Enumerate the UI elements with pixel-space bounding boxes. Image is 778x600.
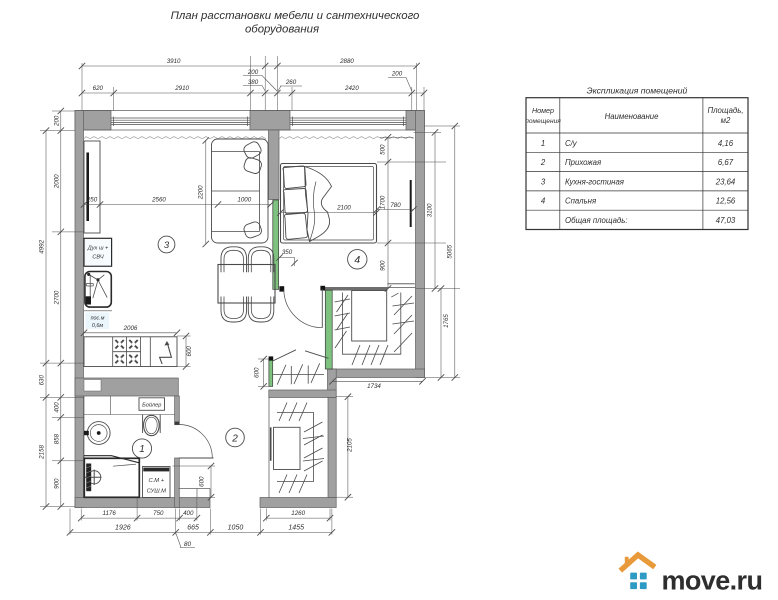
svg-text:620: 620 <box>93 85 104 92</box>
svg-text:250: 250 <box>86 197 98 204</box>
svg-text:2880: 2880 <box>339 58 354 65</box>
svg-text:1: 1 <box>139 444 145 455</box>
svg-text:600: 600 <box>199 476 206 487</box>
svg-text:2105: 2105 <box>347 438 354 453</box>
svg-text:Экспликация помещений: Экспликация помещений <box>587 86 688 96</box>
svg-text:600: 600 <box>186 346 193 357</box>
svg-text:900: 900 <box>53 478 60 489</box>
svg-text:80: 80 <box>184 541 192 548</box>
svg-text:3: 3 <box>164 240 170 251</box>
svg-text:400: 400 <box>53 402 60 413</box>
svg-text:1260: 1260 <box>291 510 305 517</box>
svg-text:750: 750 <box>153 510 164 517</box>
svg-text:1926: 1926 <box>115 524 131 531</box>
svg-text:1050: 1050 <box>228 524 244 531</box>
svg-text:858: 858 <box>53 433 60 444</box>
svg-text:380: 380 <box>248 79 259 86</box>
svg-text:Спальня: Спальня <box>565 197 597 206</box>
svg-text:47,03: 47,03 <box>716 216 736 225</box>
svg-text:помещения: помещения <box>525 118 561 125</box>
svg-text:2910: 2910 <box>174 85 189 92</box>
svg-text:1765: 1765 <box>443 314 450 328</box>
svg-text:23,64: 23,64 <box>715 177 736 186</box>
svg-text:Наименование: Наименование <box>605 112 659 121</box>
svg-text:Общая площадь:: Общая площадь: <box>565 216 628 225</box>
svg-text:780: 780 <box>390 202 401 209</box>
svg-text:Бойлер: Бойлер <box>142 402 161 409</box>
svg-text:665: 665 <box>187 524 199 531</box>
svg-text:Дух ш +: Дух ш + <box>87 246 109 252</box>
svg-text:900: 900 <box>380 260 387 271</box>
svg-text:2006: 2006 <box>123 325 138 332</box>
svg-text:5065: 5065 <box>446 244 453 258</box>
svg-text:4,16: 4,16 <box>718 139 734 148</box>
svg-text:6,67: 6,67 <box>718 158 734 167</box>
svg-text:3910: 3910 <box>167 58 181 65</box>
svg-text:С/у: С/у <box>565 139 578 148</box>
svg-text:1700: 1700 <box>380 195 387 209</box>
svg-text:1176: 1176 <box>102 510 116 517</box>
svg-text:630: 630 <box>39 375 46 386</box>
svg-text:2158: 2158 <box>39 445 46 460</box>
svg-text:200: 200 <box>53 115 60 127</box>
svg-text:1: 1 <box>541 139 545 148</box>
svg-text:2: 2 <box>231 433 238 444</box>
svg-text:Номер: Номер <box>532 106 554 115</box>
svg-text:2100: 2100 <box>336 205 351 212</box>
svg-text:Прихожая: Прихожая <box>565 158 602 167</box>
svg-text:350: 350 <box>282 249 293 256</box>
svg-text:2000: 2000 <box>53 174 60 189</box>
svg-text:200: 200 <box>247 69 259 76</box>
svg-text:пос.м: пос.м <box>91 316 105 322</box>
svg-text:м2: м2 <box>721 116 731 125</box>
svg-text:оборудования: оборудования <box>245 24 319 36</box>
svg-text:0,6м: 0,6м <box>92 323 103 329</box>
svg-text:Кухня-гостиная: Кухня-гостиная <box>565 177 625 186</box>
svg-text:2700: 2700 <box>53 290 60 305</box>
svg-text:3: 3 <box>541 177 546 186</box>
svg-text:1000: 1000 <box>237 197 251 204</box>
svg-text:4: 4 <box>541 197 546 206</box>
svg-text:План расстановки мебели и сант: План расстановки мебели и сантехническог… <box>171 10 420 22</box>
svg-text:400: 400 <box>183 510 194 517</box>
svg-text:4992: 4992 <box>39 239 46 253</box>
svg-text:Площадь,: Площадь, <box>707 106 743 115</box>
svg-text:260: 260 <box>285 79 297 86</box>
svg-text:2420: 2420 <box>344 85 359 92</box>
svg-text:1734: 1734 <box>367 383 381 390</box>
svg-text:4: 4 <box>354 254 360 266</box>
svg-text:500: 500 <box>380 144 387 155</box>
svg-text:600: 600 <box>254 367 261 378</box>
svg-text:3100: 3100 <box>427 203 434 217</box>
svg-text:СВЧ: СВЧ <box>92 255 104 261</box>
svg-text:1455: 1455 <box>288 524 304 531</box>
svg-text:2: 2 <box>540 158 546 167</box>
svg-text:С.М +: С.М + <box>148 478 164 484</box>
svg-text:2200: 2200 <box>197 185 204 200</box>
svg-text:12,56: 12,56 <box>716 197 736 206</box>
svg-text:СУШ.М: СУШ.М <box>147 489 167 495</box>
svg-text:2560: 2560 <box>151 197 166 204</box>
svg-text:200: 200 <box>391 71 403 78</box>
svg-text:move.ru: move.ru <box>662 566 763 596</box>
